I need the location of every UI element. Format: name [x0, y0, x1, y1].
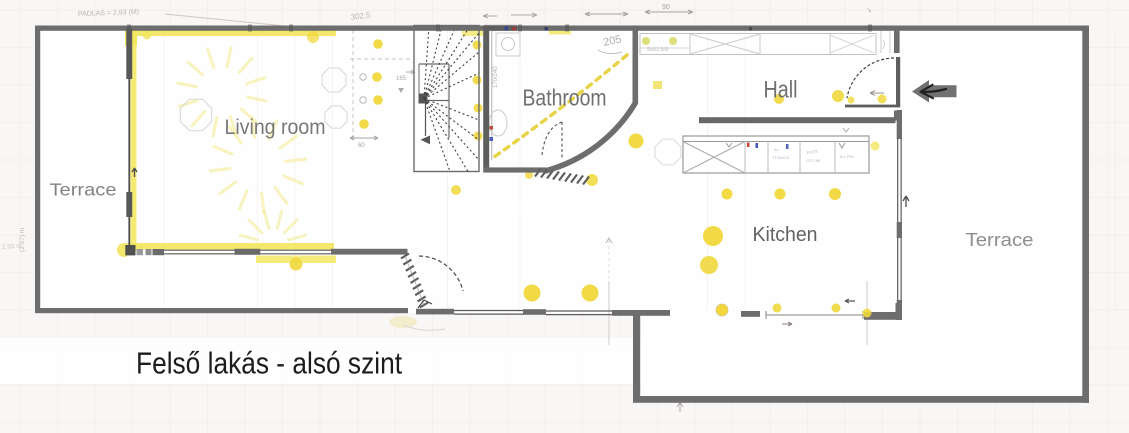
- svg-text:165: 165: [396, 76, 407, 82]
- svg-text:Living room: Living room: [225, 116, 326, 139]
- svg-text:Kitchen: Kitchen: [753, 223, 818, 246]
- svg-text:TTGDGJt: TTGDGJt: [772, 155, 790, 160]
- svg-text:Felső lakás - alsó szint: Felső lakás - alsó szint: [136, 346, 402, 381]
- svg-text:Bathroom: Bathroom: [523, 85, 607, 111]
- svg-text:↘: ↘: [866, 7, 872, 14]
- svg-text:Terrace: Terrace: [50, 180, 117, 200]
- svg-text:2,93 m: 2,93 m: [2, 243, 22, 251]
- svg-text:Terrace: Terrace: [966, 229, 1034, 250]
- svg-text:170/240: 170/240: [493, 66, 499, 88]
- svg-text:90: 90: [662, 4, 670, 11]
- svg-text:Hall: Hall: [764, 77, 798, 104]
- svg-text:OT2.3lK: OT2.3lK: [806, 158, 821, 163]
- svg-text:60: 60: [358, 143, 365, 149]
- svg-text:AL: AL: [774, 147, 780, 152]
- svg-text:B.1 P.M: B.1 P.M: [840, 154, 854, 159]
